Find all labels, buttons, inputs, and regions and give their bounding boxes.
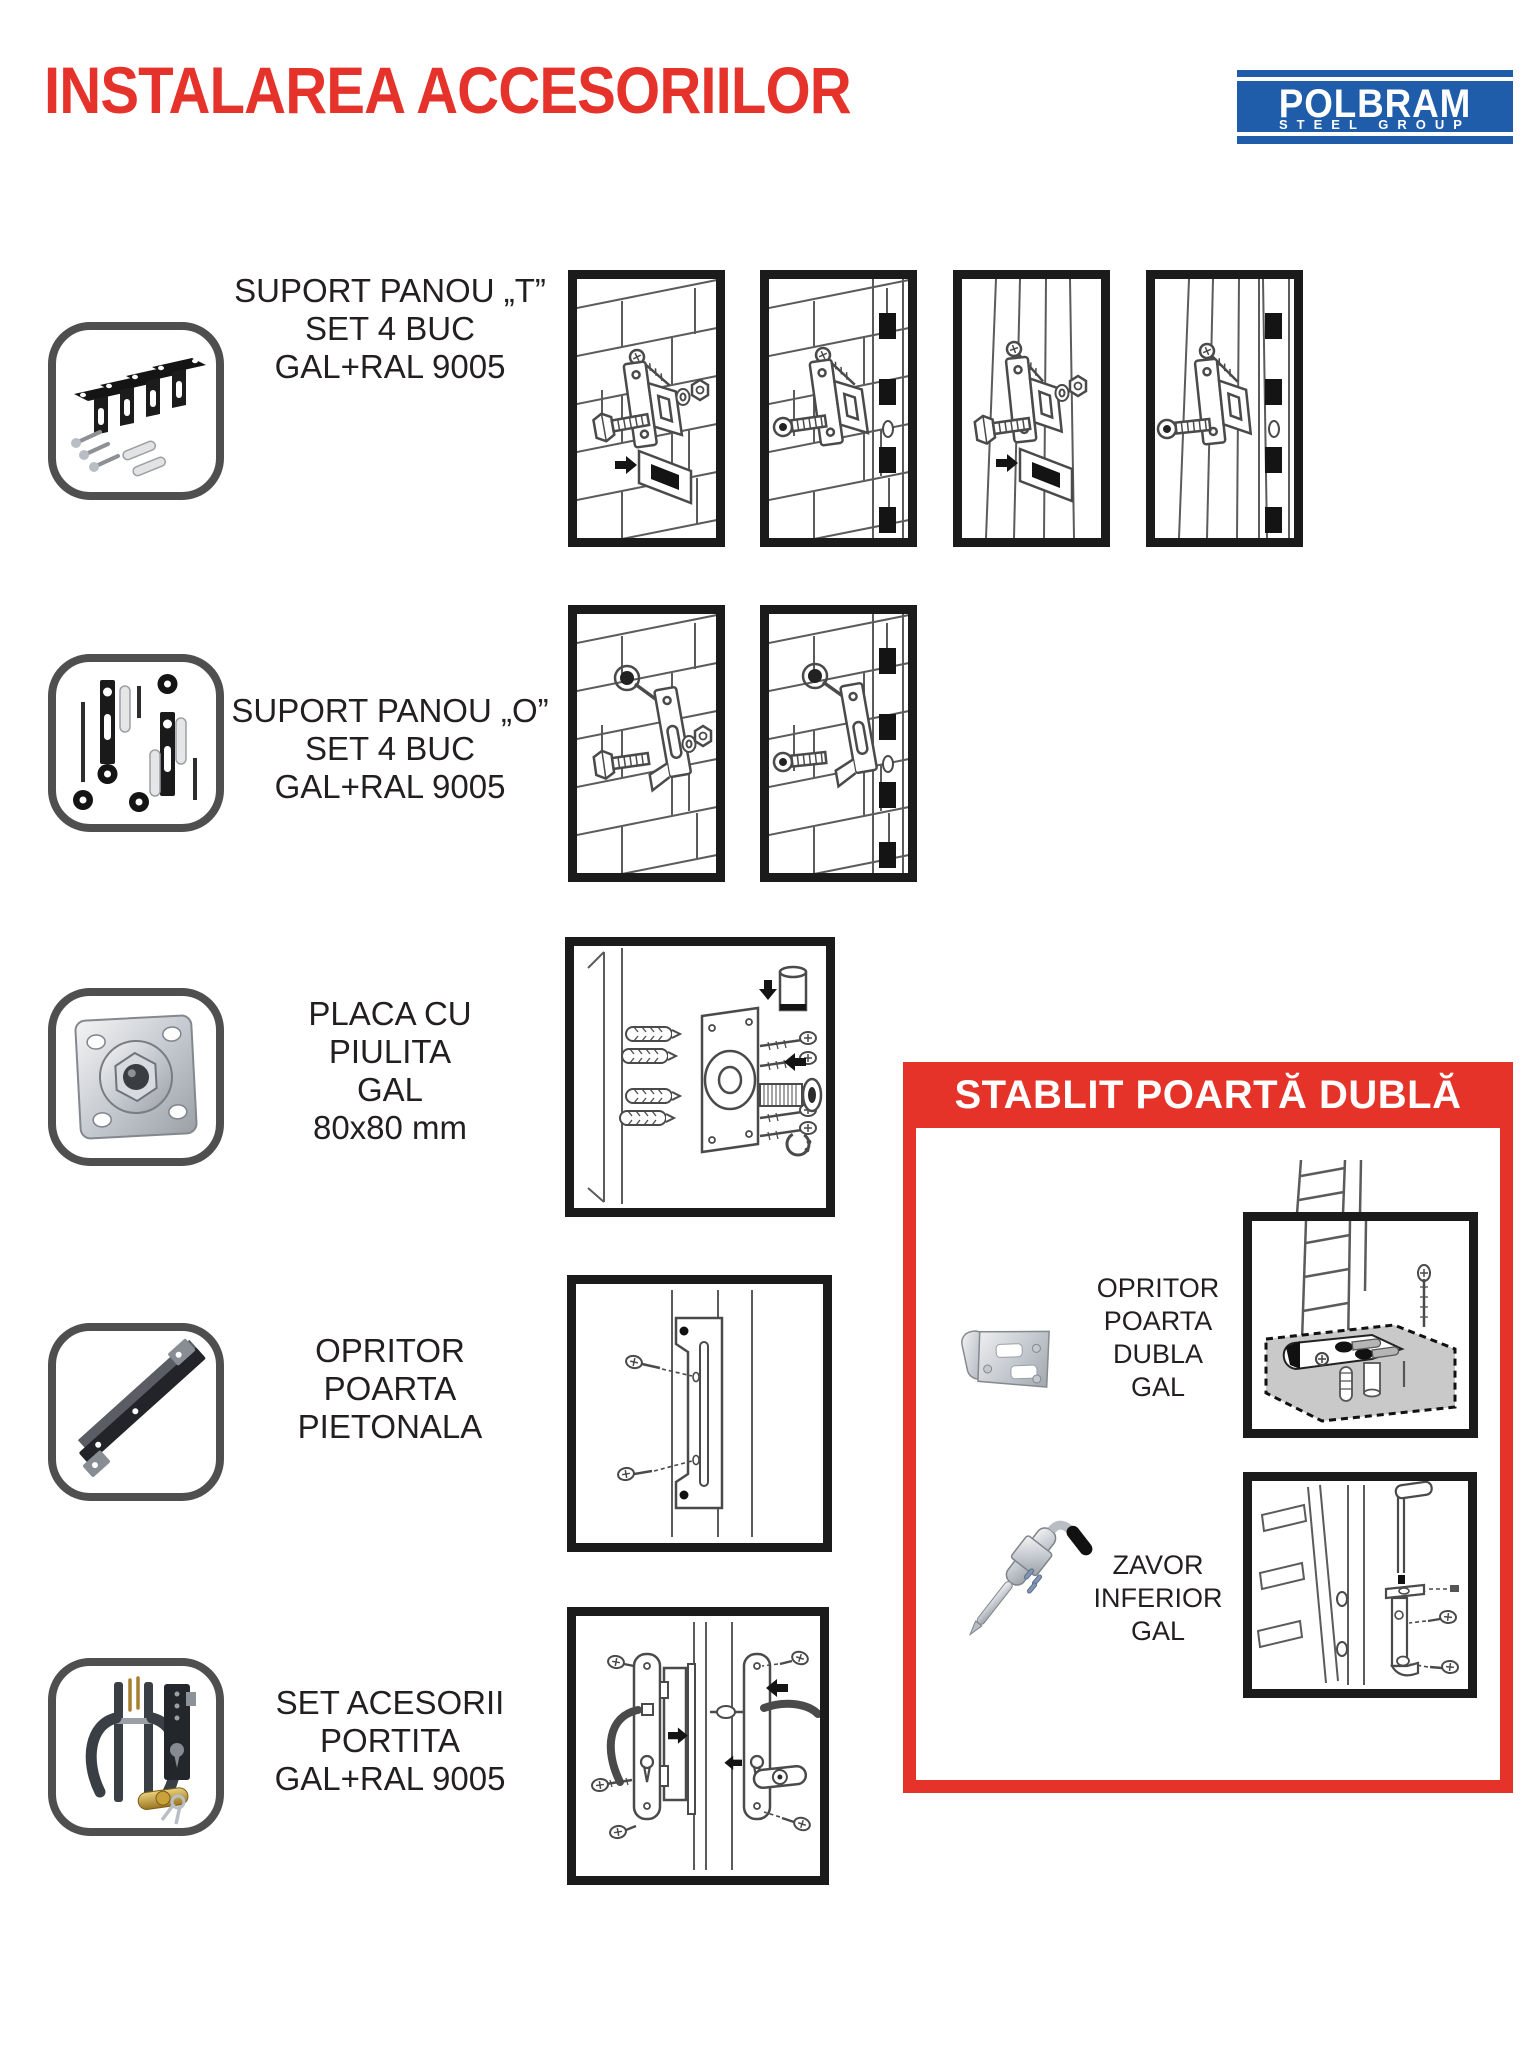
product-name-2: PORTITA	[225, 1722, 555, 1760]
catalog-page: INSTALAREA ACCESORIILOR POLBRAM STEEL GR…	[0, 0, 1536, 2048]
product-name: SET ACESORII	[225, 1684, 555, 1722]
drop-bolt-diagram	[1243, 1472, 1477, 1698]
step-diagram-lockset	[567, 1607, 829, 1885]
product-finish: GAL	[225, 1071, 555, 1109]
product-name: PLACA CU	[225, 995, 555, 1033]
t-bracket-set-photo	[48, 322, 224, 500]
product-label: PLACA CU PIULITA GAL 80x80 mm	[225, 995, 555, 1147]
product-label: SET ACESORII PORTITA GAL+RAL 9005	[225, 1684, 555, 1798]
product-finish: GAL+RAL 9005	[225, 768, 555, 806]
logo-stripe	[1237, 77, 1513, 81]
product-name: OPRITOR	[225, 1332, 555, 1370]
product-qty: SET 4 BUC	[225, 730, 555, 768]
product-name-2: PIULITA	[225, 1033, 555, 1071]
nut-plate-icon	[56, 996, 216, 1158]
product-label: SUPORT PANOU „T” SET 4 BUC GAL+RAL 9005	[225, 272, 555, 386]
o-bracket-set-photo	[48, 654, 224, 832]
product-name-3: PIETONALA	[225, 1408, 555, 1446]
panel-item-label: OPRITOR POARTA DUBLA GAL	[1078, 1272, 1238, 1404]
step-diagram-t-3	[953, 270, 1110, 547]
double-gate-panel-title: STABLIT POARTĂ DUBLĂ	[903, 1062, 1513, 1128]
step-diagram-t-1	[568, 270, 725, 547]
product-name-2: POARTA	[225, 1370, 555, 1408]
step-diagram-t-2	[760, 270, 917, 547]
drop-bolt-photo	[935, 1492, 1095, 1662]
product-name: SUPORT PANOU „T”	[225, 272, 555, 310]
page-title: INSTALAREA ACCESORIILOR	[44, 52, 851, 128]
step-diagram-o-1	[568, 605, 725, 882]
product-size: 80x80 mm	[225, 1109, 555, 1147]
step-diagram-t-4	[1146, 270, 1303, 547]
logo-stripe	[1237, 132, 1513, 136]
product-label: SUPORT PANOU „O” SET 4 BUC GAL+RAL 9005	[225, 692, 555, 806]
logo-subtitle: STEEL GROUP	[1237, 117, 1513, 132]
panel-item-label: ZAVOR INFERIOR GAL	[1078, 1549, 1238, 1648]
product-qty: SET 4 BUC	[225, 310, 555, 348]
product-finish: GAL+RAL 9005	[225, 348, 555, 386]
gate-lock-set-icon	[56, 1666, 216, 1828]
nut-plate-photo	[48, 988, 224, 1166]
step-diagram-o-2	[760, 605, 917, 882]
product-finish: GAL+RAL 9005	[225, 1760, 555, 1798]
double-gate-stop-diagram	[1243, 1212, 1478, 1438]
o-bracket-set-icon	[56, 662, 216, 824]
step-diagram-plate	[565, 937, 835, 1217]
gate-stop-bar-photo	[48, 1323, 224, 1501]
product-label: OPRITOR POARTA PIETONALA	[225, 1332, 555, 1446]
polbram-logo: POLBRAM STEEL GROUP	[1237, 70, 1513, 144]
t-bracket-set-icon	[56, 330, 216, 492]
gate-post-top	[1283, 1160, 1413, 1214]
step-diagram-stop	[567, 1275, 832, 1552]
double-gate-stop-photo	[945, 1288, 1075, 1420]
product-name: SUPORT PANOU „O”	[225, 692, 555, 730]
gate-lock-set-photo	[48, 1658, 224, 1836]
gate-stop-bar-icon	[56, 1331, 216, 1493]
